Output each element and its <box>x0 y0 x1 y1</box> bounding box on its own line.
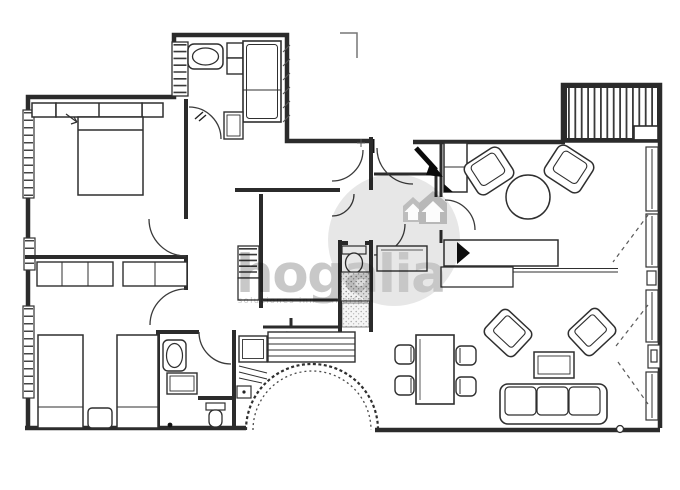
twin-bed-2 <box>117 335 158 428</box>
shower-floor <box>342 303 369 327</box>
three-seat-sofa <box>500 384 607 424</box>
window-handle-inner <box>651 350 657 362</box>
utility-box-dot <box>242 390 245 393</box>
watermark: hogalia soluciones inmobiliarias <box>236 174 460 306</box>
window-band <box>23 110 34 198</box>
bidet-cabinet-inner <box>227 115 240 136</box>
washbasin-bowl <box>193 48 219 65</box>
round-side-table <box>506 175 550 219</box>
arched-opening <box>246 364 378 430</box>
shower-tray-inner <box>170 376 194 391</box>
toilet-cistern-top <box>227 43 243 58</box>
steps <box>268 332 355 362</box>
wall-box-small <box>647 271 656 285</box>
towel-radiator <box>172 42 188 96</box>
shared-nightstand <box>88 408 112 428</box>
nightstand-left <box>32 103 56 117</box>
wardrobe-row-left <box>37 262 113 286</box>
floor-drain-dot <box>168 423 173 428</box>
neighbor-wall-stub <box>340 33 357 58</box>
floor-plan-drawing: hogalia soluciones inmobiliarias <box>0 0 680 490</box>
watermark-tagline-text: soluciones inmobiliarias <box>238 295 370 305</box>
hall-door-arc <box>332 150 363 181</box>
hatch-wedge <box>239 366 267 383</box>
toilet-bottom-bowl <box>209 410 222 427</box>
armchair-3 <box>482 307 534 359</box>
toilet-cabinet <box>227 58 243 74</box>
niche-wall-lower <box>263 318 340 327</box>
dining-table <box>416 335 454 404</box>
coffee-table-inner <box>538 356 570 374</box>
bedroom2-door-arc <box>150 289 186 325</box>
washbasin-bowl <box>167 344 183 368</box>
door-stop-marker <box>617 426 624 433</box>
curtain-swing-dashes <box>613 215 648 404</box>
toilet-bottom-cistern <box>206 403 225 410</box>
bedroom-double <box>32 103 163 195</box>
bathroom1-door-arc <box>189 107 221 139</box>
bedroom1-door-arc <box>149 219 186 256</box>
left-wall-windows <box>23 110 35 398</box>
washing-machine-inner <box>243 340 264 359</box>
floor-plan-page: hogalia soluciones inmobiliarias <box>0 0 680 490</box>
laundry-niche <box>237 336 267 398</box>
steps-outline <box>268 332 355 362</box>
bathtub-inner <box>247 45 278 119</box>
terrace-deck <box>563 87 658 141</box>
bathroom-top <box>172 41 281 139</box>
dining-chair-4 <box>456 377 476 396</box>
deck-step-box <box>634 126 658 140</box>
armchair-4 <box>566 306 618 358</box>
dining-area <box>395 335 476 404</box>
double-bed <box>78 117 143 195</box>
armchair-2 <box>542 142 597 195</box>
dining-chair-3 <box>456 346 476 365</box>
window-band <box>24 238 35 270</box>
bathroom2-door-arc <box>199 332 231 364</box>
bathroom1-door-arrows <box>195 112 206 121</box>
arch-outer <box>246 364 378 430</box>
ledge-lines <box>513 269 618 273</box>
bathroom-bottom <box>163 340 225 427</box>
twin-bed-1 <box>38 335 83 428</box>
nightstand-right <box>142 103 163 117</box>
